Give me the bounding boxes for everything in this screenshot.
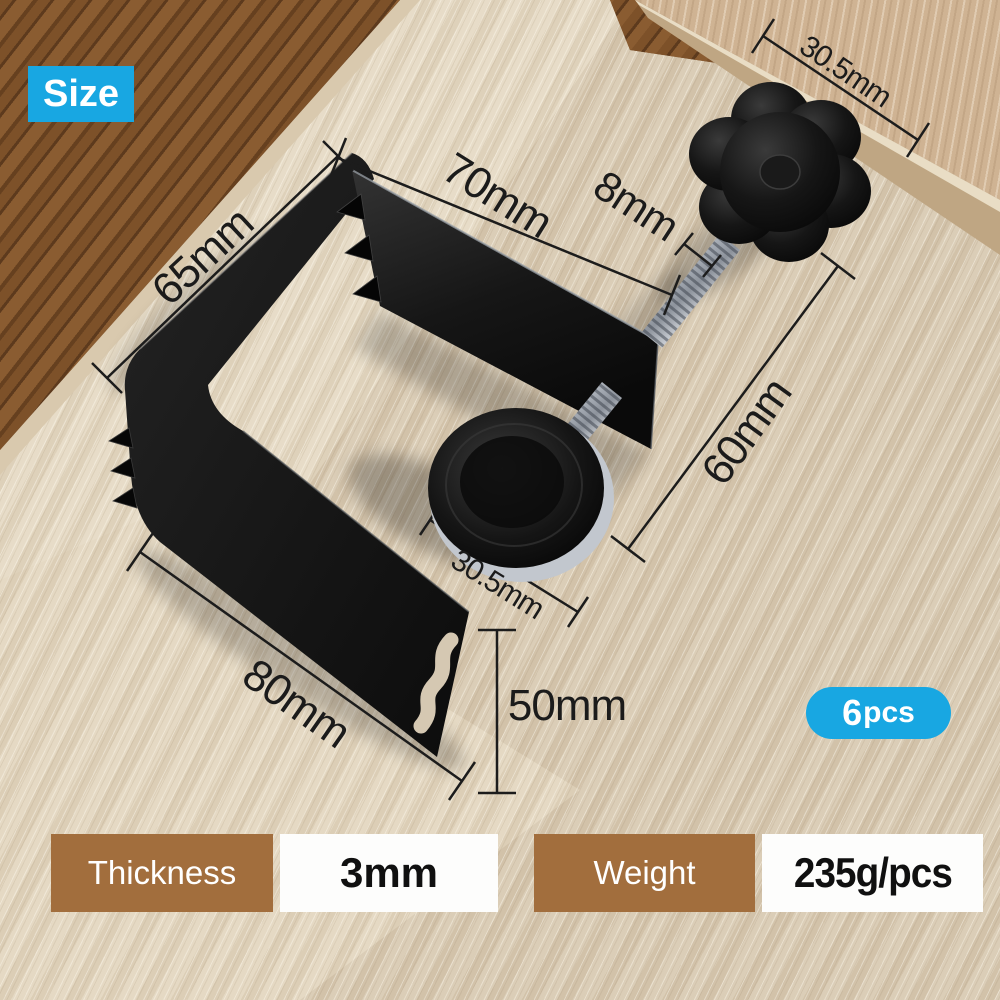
thickness-value-text: 3mm [340,849,438,897]
thickness-label: Thickness [51,834,273,912]
weight-label: Weight [534,834,755,912]
thickness-label-text: Thickness [88,854,237,892]
pack-count-unit: pcs [863,696,915,730]
dimension-slot-height-label: 50mm [508,681,626,731]
weight-value: 235g/pcs [762,834,983,912]
pack-count-number: 6 [842,692,862,734]
product-size-infographic: 30.5mm 70mm 8mm 65mm 60mm 30.5mm 80mm 50… [0,0,1000,1000]
size-badge-label: Size [43,73,119,116]
thickness-value: 3mm [280,834,498,912]
star-knob [689,82,871,262]
weight-label-text: Weight [593,854,695,892]
weight-value-text: 235g/pcs [793,849,951,897]
pack-count-badge: 6pcs [806,687,951,739]
size-badge: Size [28,66,134,122]
